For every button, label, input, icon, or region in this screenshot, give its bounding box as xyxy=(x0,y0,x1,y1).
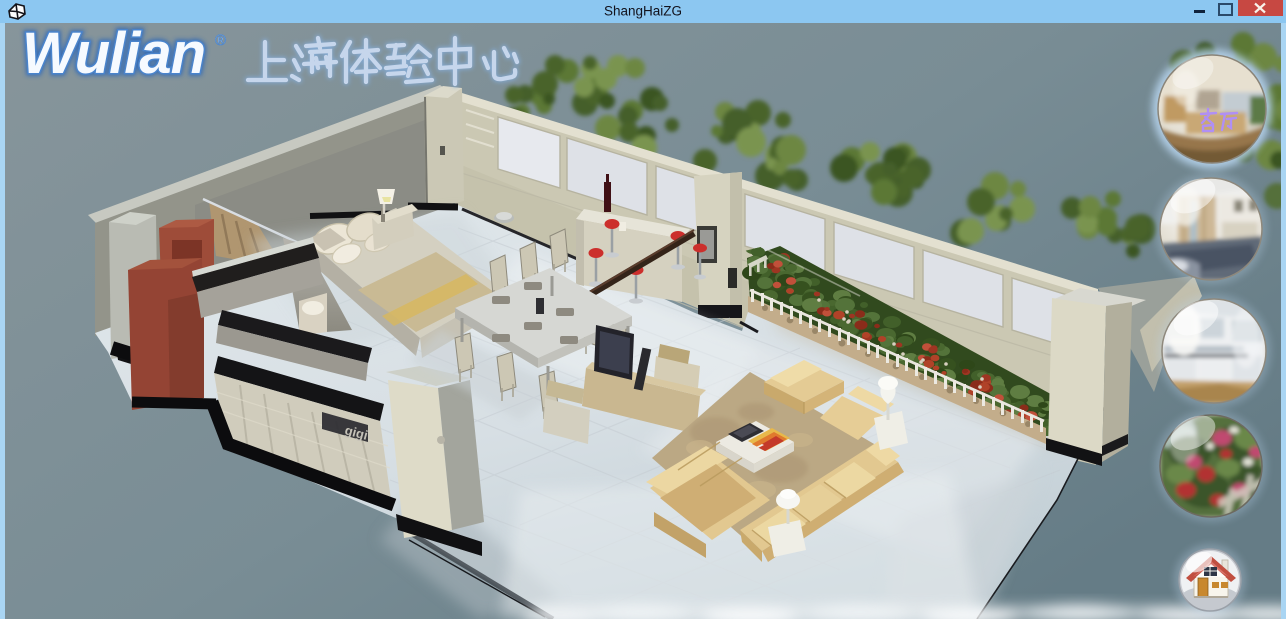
svg-text:Wulian: Wulian xyxy=(22,21,205,86)
svg-text:®: ® xyxy=(215,32,226,49)
svg-text:ShangHaiZG: ShangHaiZG xyxy=(604,4,682,19)
